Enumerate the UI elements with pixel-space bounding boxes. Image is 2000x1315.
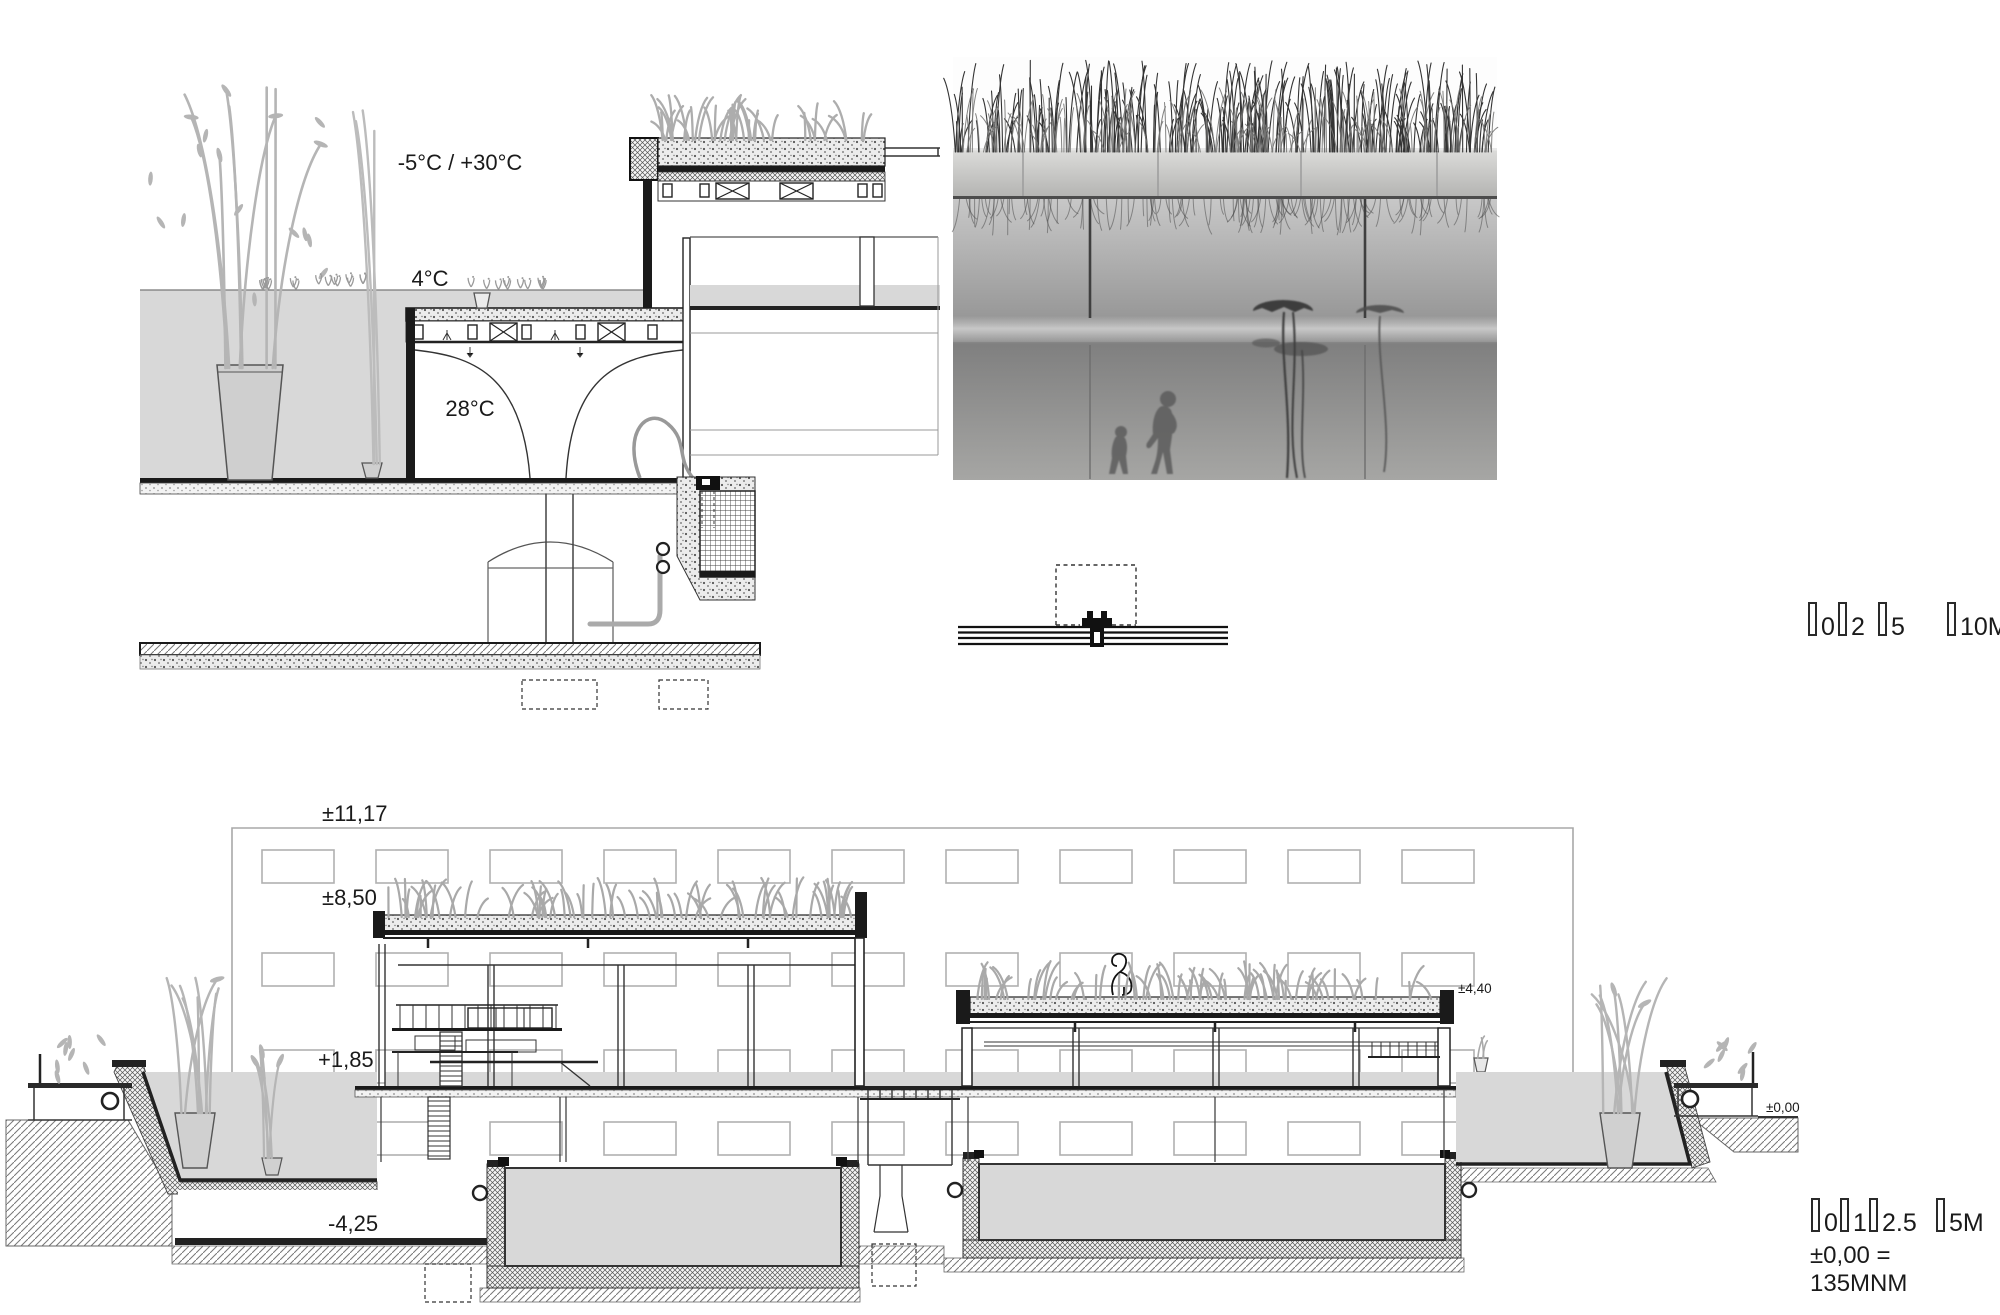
scale-tick	[1808, 602, 1817, 636]
green-roof-soil-band	[406, 308, 688, 321]
green-roof-low	[970, 997, 1440, 1015]
scale-label: 0	[1821, 613, 1835, 642]
overflow-grating	[700, 491, 755, 577]
architectural-sheet: -5°C / +30°C 4°C 28°C ±11,17 ±8,50 +1,85…	[0, 0, 2000, 1315]
basement-stair	[428, 1097, 450, 1159]
outdoor-pool-right	[1456, 1072, 1690, 1162]
scale-label: 10M	[1960, 613, 2000, 642]
glazing-joint-detail	[958, 565, 1228, 647]
label-level-low-roof: ±4,40	[1458, 981, 1492, 996]
label-outdoor-water-temperature: 4°C	[400, 266, 460, 292]
scale-tick	[1840, 1198, 1849, 1232]
scale-tick	[1811, 1198, 1820, 1232]
scale-tick	[1869, 1198, 1878, 1232]
label-level-ground: ±0,00	[1766, 1100, 1800, 1115]
main-hall-building	[373, 892, 867, 1086]
scale-tick	[1878, 602, 1887, 636]
label-level-water: +1,85	[318, 1047, 374, 1073]
drawing-canvas	[0, 0, 2000, 1315]
label-level-parapet-top: ±11,17	[322, 801, 388, 827]
scale-label: 2.5	[1882, 1209, 1917, 1238]
scale-tick	[1947, 602, 1956, 636]
scale-label: 5M	[1949, 1209, 1984, 1238]
hall-stair	[440, 1032, 462, 1086]
label-indoor-water-temperature: 28°C	[430, 396, 510, 422]
parapet-cut	[630, 138, 658, 180]
scale-label: 0	[1824, 1209, 1838, 1238]
storage-tank	[488, 542, 613, 562]
datum-note: ±0,00 = 135MNM	[1810, 1242, 1907, 1298]
pool-wall-cut	[406, 308, 415, 478]
indoor-pool-water	[690, 285, 940, 306]
scale-tick	[1838, 602, 1847, 636]
pool-water-level-band	[385, 1072, 1440, 1086]
thermal-detail-section	[140, 83, 940, 709]
outdoor-pool-tank	[963, 1150, 1461, 1258]
scale-label: 2	[1851, 613, 1865, 642]
low-hall-building	[956, 990, 1488, 1086]
upper-green-roof	[658, 138, 885, 166]
scale-label: 5	[1891, 613, 1905, 642]
pool-photo-rendering	[944, 57, 1499, 480]
scale-tick	[1936, 1198, 1945, 1232]
label-level-main-roof: ±8,50	[322, 885, 377, 911]
indoor-pool-tank	[487, 1157, 859, 1288]
scale-label: 1	[1853, 1209, 1867, 1238]
label-level-basement: -4,25	[328, 1211, 378, 1237]
planter-pot	[217, 365, 283, 480]
long-building-section	[6, 828, 1798, 1302]
label-air-temperature: -5°C / +30°C	[385, 150, 535, 176]
